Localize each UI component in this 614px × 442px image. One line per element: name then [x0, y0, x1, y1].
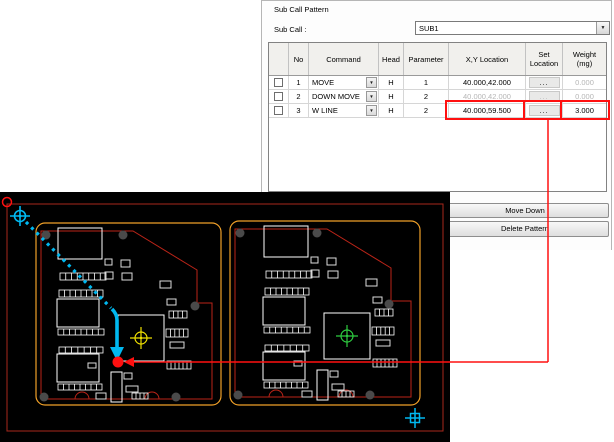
move-down-button[interactable]: Move Down — [441, 203, 609, 218]
column-header-sel — [269, 43, 289, 75]
sub-call-label: Sub Call : — [274, 25, 307, 34]
row-checkbox[interactable] — [274, 106, 283, 115]
mounting-hole — [172, 393, 181, 402]
no-cell: 1 — [289, 76, 309, 89]
set-location-cell: ... — [526, 76, 563, 89]
mounting-hole — [236, 229, 245, 238]
column-header-no: No — [289, 43, 309, 75]
no-cell: 3 — [289, 104, 309, 117]
weight-cell: 0.000 — [563, 76, 607, 89]
xy-cell: 40.000,42.000 — [449, 90, 526, 103]
mounting-hole — [40, 393, 49, 402]
column-header-command: Command — [309, 43, 379, 75]
weight-cell: 3.000 — [563, 104, 607, 117]
table-row: 2DOWN MOVE▼H240.000,42.000...0.000 — [269, 90, 606, 104]
column-header-parameter: Parameter — [404, 43, 449, 75]
row-select-cell — [269, 76, 289, 89]
column-header-set: Set Location — [526, 43, 563, 75]
table-row: 1MOVE▼H140.000,42.000...0.000 — [269, 76, 606, 90]
mounting-hole — [313, 229, 322, 238]
pcb-viewer-image — [0, 192, 450, 442]
panel-title: Sub Call Pattern — [274, 5, 329, 14]
command-value: MOVE — [312, 78, 334, 87]
xy-cell: 40.000,59.500 — [449, 104, 526, 117]
mounting-hole — [119, 231, 128, 240]
head-cell: H — [379, 104, 404, 117]
column-header-weight: Weight (mg) — [563, 43, 607, 75]
command-value: W LINE — [312, 106, 338, 115]
mounting-hole — [234, 391, 243, 400]
command-dropdown-arrow-icon[interactable]: ▼ — [366, 105, 377, 116]
column-header-xy: X,Y Location — [449, 43, 526, 75]
mounting-hole — [191, 302, 200, 311]
command-cell: W LINE▼ — [309, 104, 379, 117]
pattern-table: NoCommandHeadParameterX,Y LocationSet Lo… — [268, 42, 607, 192]
table-header-row: NoCommandHeadParameterX,Y LocationSet Lo… — [269, 43, 606, 76]
parameter-cell: 1 — [404, 76, 449, 89]
target-location-dot — [113, 357, 124, 368]
chevron-down-icon[interactable]: ▼ — [596, 22, 609, 34]
parameter-cell: 2 — [404, 104, 449, 117]
command-value: DOWN MOVE — [312, 92, 360, 101]
command-cell: DOWN MOVE▼ — [309, 90, 379, 103]
row-checkbox[interactable] — [274, 92, 283, 101]
set-location-button[interactable]: ... — [529, 77, 560, 88]
delete-pattern-button[interactable]: Delete Pattern — [441, 221, 609, 237]
weight-cell: 0.000 — [563, 90, 607, 103]
table-row: 3W LINE▼H240.000,59.500...3.000 — [269, 104, 606, 118]
set-location-button[interactable]: ... — [529, 91, 560, 102]
parameter-cell: 2 — [404, 90, 449, 103]
set-location-cell: ... — [526, 104, 563, 117]
mounting-hole — [366, 391, 375, 400]
column-header-head: Head — [379, 43, 404, 75]
set-location-cell: ... — [526, 90, 563, 103]
head-cell: H — [379, 90, 404, 103]
command-dropdown-arrow-icon[interactable]: ▼ — [366, 77, 377, 88]
no-cell: 2 — [289, 90, 309, 103]
row-checkbox[interactable] — [274, 78, 283, 87]
xy-cell: 40.000,42.000 — [449, 76, 526, 89]
sub-call-selected-value: SUB1 — [419, 24, 439, 33]
command-cell: MOVE▼ — [309, 76, 379, 89]
mounting-hole — [385, 300, 394, 309]
row-select-cell — [269, 90, 289, 103]
command-dropdown-arrow-icon[interactable]: ▼ — [366, 91, 377, 102]
row-select-cell — [269, 104, 289, 117]
head-cell: H — [379, 76, 404, 89]
set-location-button[interactable]: ... — [529, 105, 560, 116]
sub-call-dropdown[interactable]: SUB1 ▼ — [415, 21, 610, 35]
screenshot-stage: Sub Call Pattern Sub Call : SUB1 ▼ NoCom… — [0, 0, 614, 442]
